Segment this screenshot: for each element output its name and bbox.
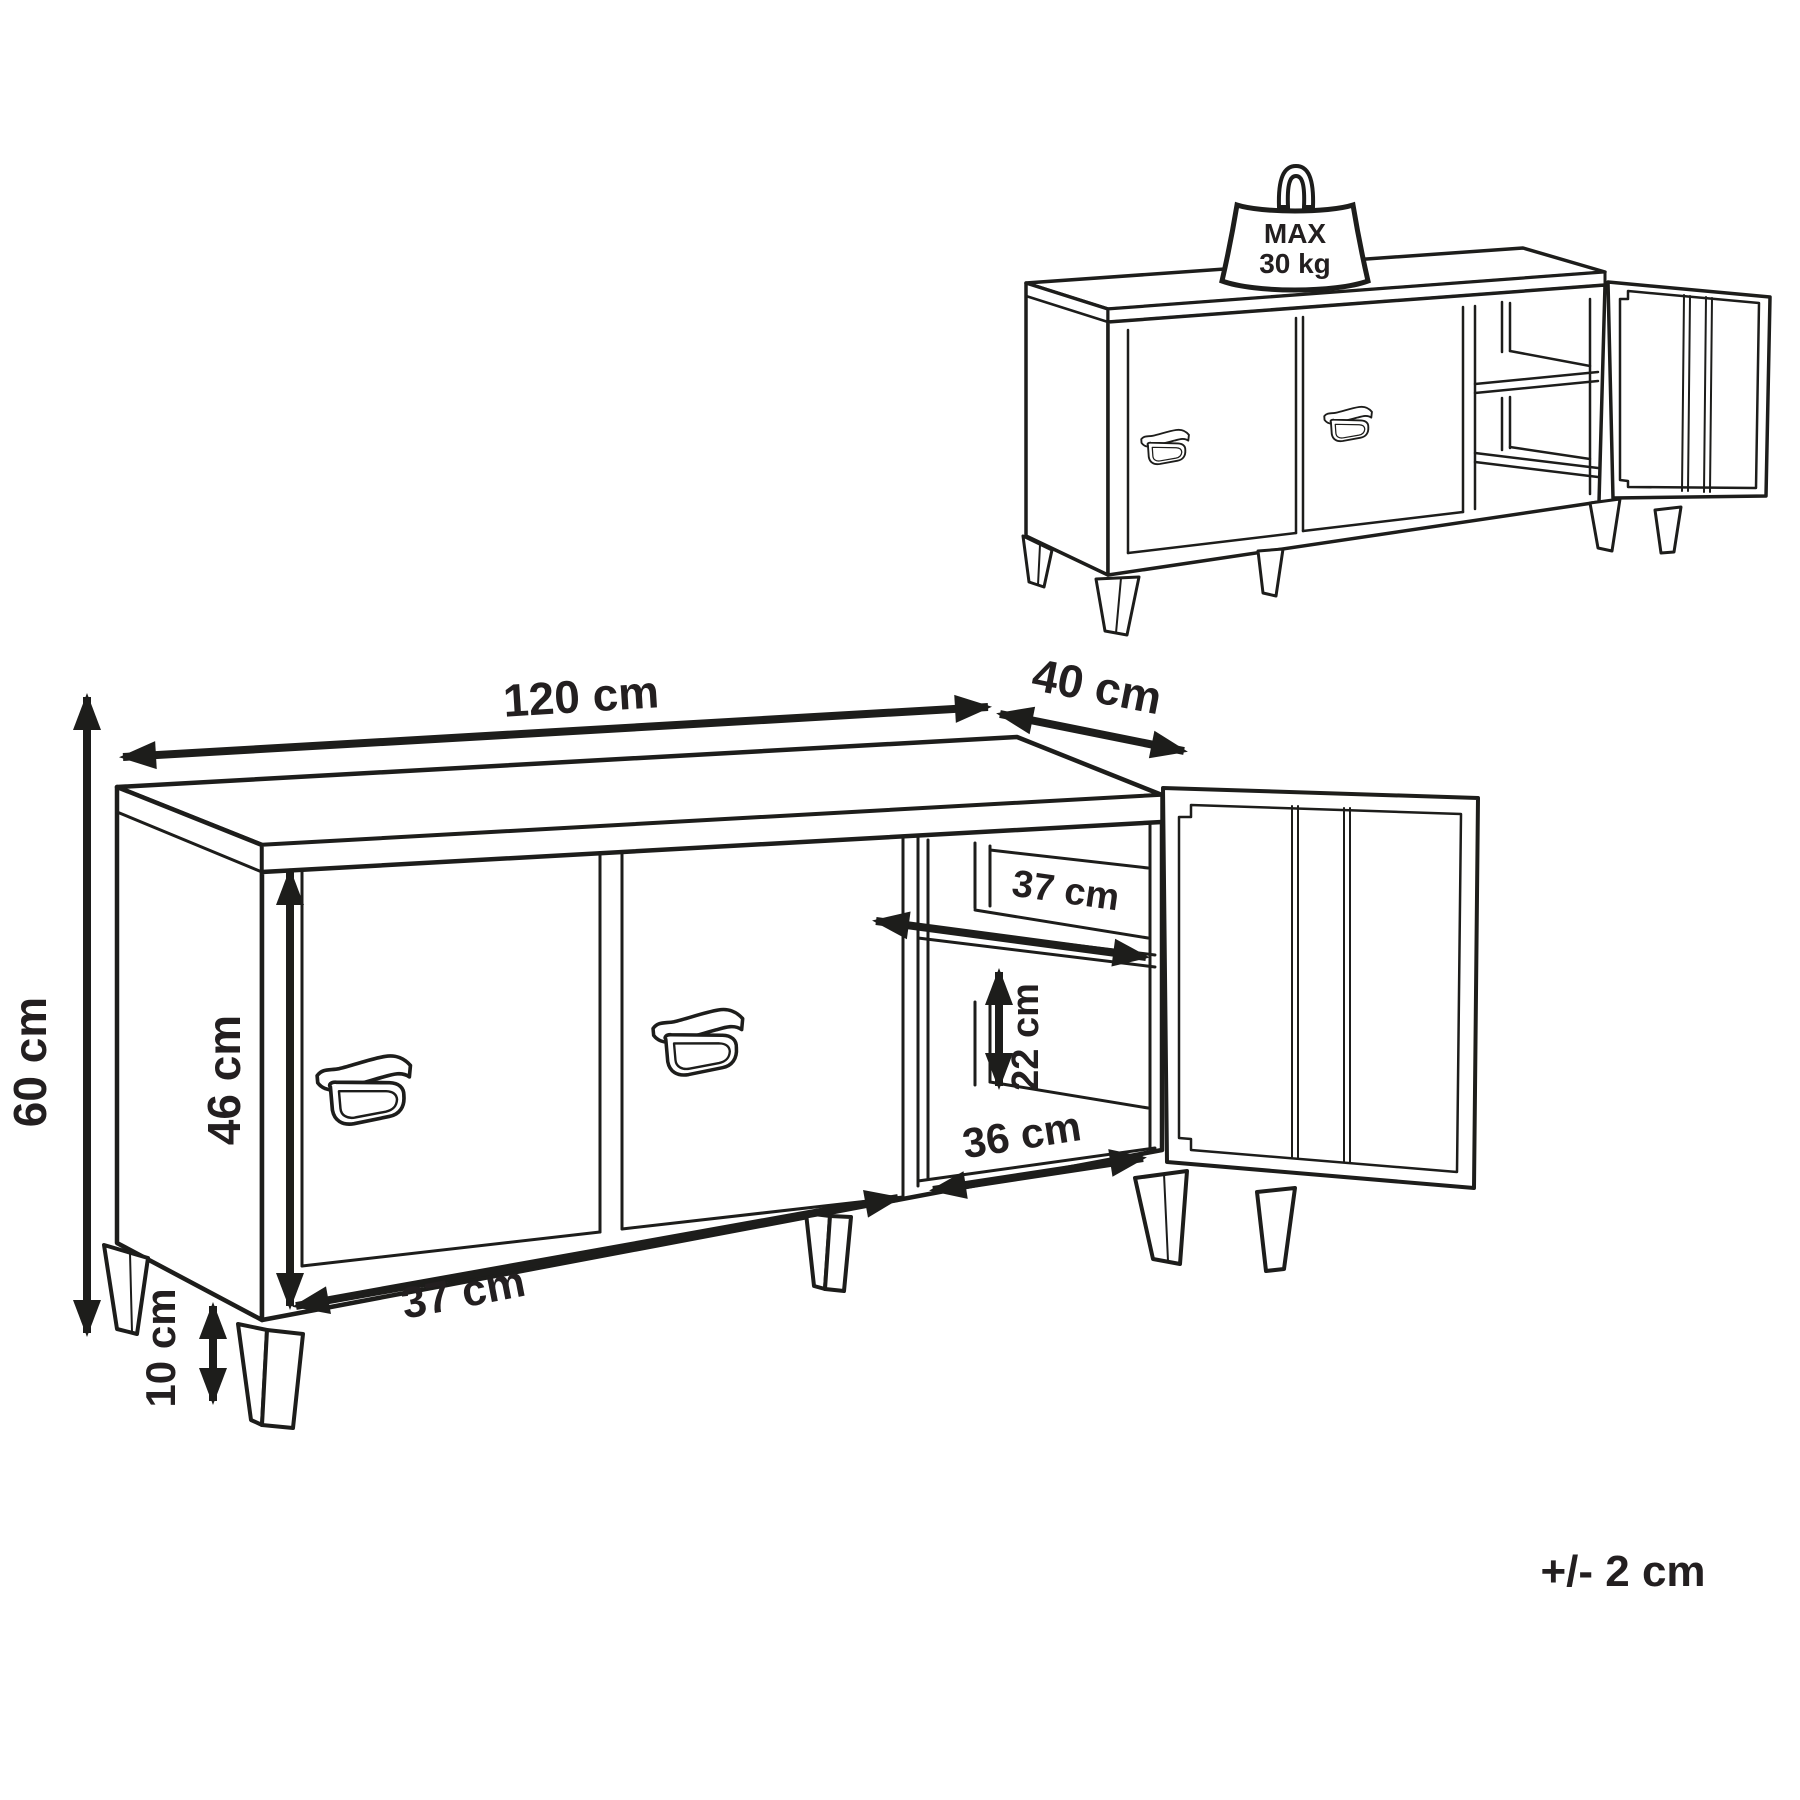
- main-cabinet-open-door: [1163, 788, 1478, 1188]
- height-label: 60 cm: [4, 997, 56, 1127]
- furniture-dimension-diagram: MAX 30 kg: [0, 0, 1800, 1800]
- leg-height-label: 10 cm: [137, 1288, 184, 1407]
- small-cabinet-open-door: [1608, 282, 1770, 498]
- door-height-label: 46 cm: [198, 1015, 250, 1145]
- main-cabinet-drawing: [104, 737, 1478, 1428]
- diagram-canvas: MAX 30 kg: [0, 0, 1800, 1800]
- max-load-line2: 30 kg: [1259, 248, 1331, 279]
- width-label: 120 cm: [502, 665, 661, 726]
- depth-label: 40 cm: [1028, 648, 1166, 724]
- max-load-icon: MAX 30 kg: [1222, 166, 1368, 290]
- small-cabinet-drawing: [1023, 248, 1770, 635]
- weight-handle-icon: [1279, 166, 1313, 207]
- max-load-line1: MAX: [1264, 218, 1327, 249]
- tolerance-note: +/- 2 cm: [1540, 1547, 1705, 1596]
- shelf-gap-label: 22 cm: [1005, 983, 1047, 1091]
- small-cabinet-left-face: [1026, 283, 1108, 575]
